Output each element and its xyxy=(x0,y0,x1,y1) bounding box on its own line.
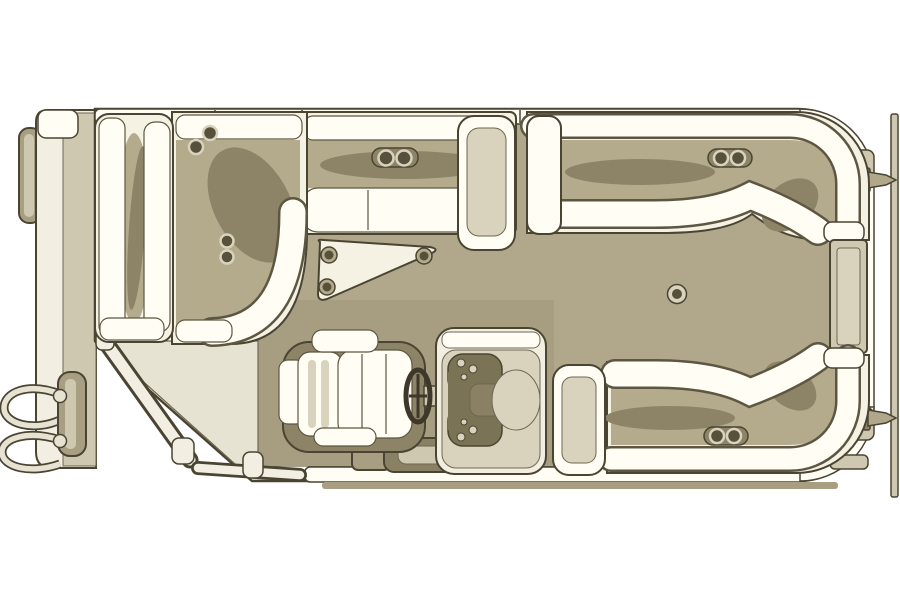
port-bench-armrest xyxy=(458,116,515,250)
stern-gate-panel xyxy=(830,240,867,353)
floorplan-svg xyxy=(0,0,900,604)
helm-console xyxy=(436,328,546,474)
lounge-armrest xyxy=(527,116,561,234)
chair-armrest xyxy=(314,428,376,446)
table-mount-base xyxy=(668,285,687,304)
chair-armrest xyxy=(312,330,378,352)
backrest-cushion xyxy=(99,118,125,336)
chair-backrest xyxy=(298,352,342,436)
chair-seat xyxy=(338,350,412,438)
cup-holders xyxy=(708,149,752,167)
pontoon-floorplan-diagram xyxy=(0,0,900,604)
stern-port-lounge xyxy=(527,112,869,242)
cup-holders-port-bench xyxy=(372,148,418,167)
bow-lounge xyxy=(95,114,173,342)
seat-cushion xyxy=(144,122,170,332)
bow-corner-cap xyxy=(38,110,78,138)
cup-holders xyxy=(704,427,748,445)
stern-trim-strip xyxy=(891,114,898,497)
captains-chair xyxy=(279,330,425,452)
gate-hinge-post xyxy=(172,438,194,464)
backrest-cushion xyxy=(176,115,302,139)
stern-lounge-armrest xyxy=(553,365,605,475)
mount-bolt xyxy=(319,279,335,295)
mount-bolt xyxy=(416,248,432,264)
gate-latch-post xyxy=(243,452,263,478)
mount-bolt xyxy=(321,247,337,263)
